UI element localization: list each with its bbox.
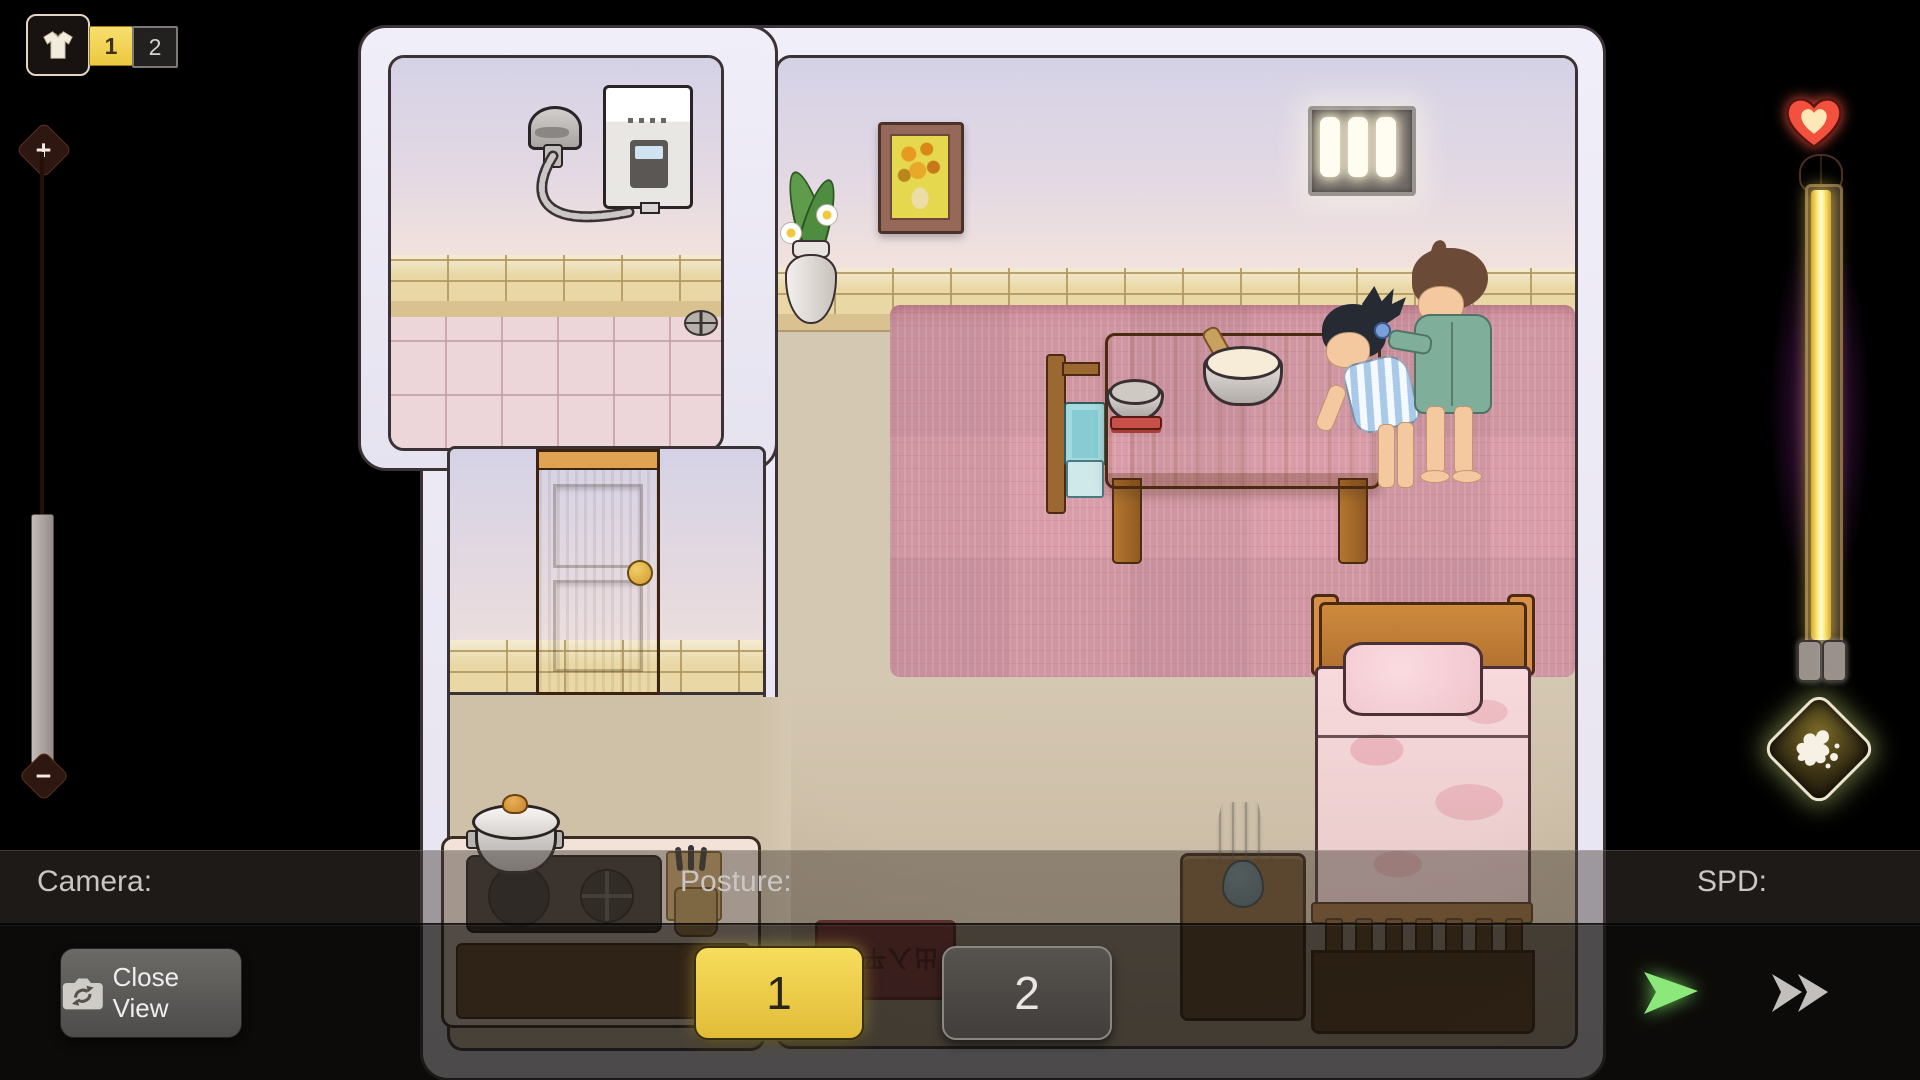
close-view-button[interactable]: Close View [60, 948, 242, 1038]
blanket-fold [1318, 735, 1528, 738]
posture-2-label: 2 [1014, 966, 1040, 1020]
heater-vents [628, 118, 668, 123]
chopsticks [1110, 416, 1162, 430]
arousal-gauge [1805, 184, 1843, 652]
chair-back [1046, 354, 1066, 514]
sunflower-painting [878, 122, 964, 234]
chair-cushion [1064, 402, 1106, 466]
heater-panel [630, 140, 668, 188]
window-pane [1348, 117, 1368, 177]
boy-cardigan [1414, 314, 1492, 414]
vase-body [785, 254, 837, 324]
close-view-label: Close View [113, 962, 241, 1024]
bathroom [388, 55, 724, 451]
window-pane [1376, 117, 1396, 177]
posture-1-label: 1 [766, 966, 792, 1020]
boy-character[interactable] [1402, 248, 1502, 498]
door-lintel [539, 452, 657, 470]
chair[interactable] [1046, 354, 1106, 514]
flower-vase [778, 170, 842, 326]
heater-outlet [640, 202, 660, 214]
daisy-flower [816, 204, 838, 226]
window [1308, 106, 1416, 196]
boy-leg [1426, 406, 1445, 474]
zoom-in-button[interactable]: + [16, 122, 73, 179]
outfit-1-label: 1 [105, 33, 118, 60]
painting-canvas [890, 134, 950, 220]
minus-icon: − [36, 763, 52, 790]
heart-icon [1782, 92, 1846, 150]
posture-1-button[interactable]: 1 [694, 946, 864, 1040]
game-screen: 出入平安 [0, 0, 1920, 1080]
chair-towel [1066, 460, 1104, 498]
fast-forward-icon[interactable] [1768, 966, 1854, 1020]
brick-trim [391, 255, 721, 301]
floor-drain [684, 310, 718, 336]
splash-diamond-icon[interactable] [1770, 700, 1862, 792]
shower-face [535, 127, 569, 138]
zoom-out-button[interactable]: − [19, 751, 70, 802]
table-leg [1112, 478, 1142, 564]
boy-foot [1420, 470, 1450, 483]
water-heater[interactable] [603, 85, 693, 209]
girl-leg [1378, 424, 1395, 488]
window-pane [1320, 117, 1340, 177]
boy-foot [1452, 470, 1482, 483]
shirt-icon [40, 29, 76, 61]
outfit-1-button[interactable]: 1 [89, 26, 133, 66]
heater-display [635, 146, 663, 159]
bowl-rim [1109, 379, 1161, 405]
door-panel [553, 484, 643, 568]
play-arrow-icon[interactable] [1640, 966, 1702, 1020]
bathroom-tiles [391, 317, 721, 448]
gauge-bottom-cap [1797, 640, 1847, 682]
pillow [1343, 642, 1483, 716]
outfit-2-button[interactable]: 2 [132, 26, 178, 68]
chair-rail [1062, 362, 1100, 376]
arousal-gauge-fill [1811, 190, 1831, 640]
porridge [1205, 346, 1281, 380]
posture-label: Posture: [680, 865, 792, 899]
boy-leg [1454, 406, 1473, 474]
wooden-door[interactable] [536, 449, 660, 695]
door-panel [553, 580, 643, 672]
spd-label: SPD: [1697, 865, 1767, 899]
splash-glyph [1786, 716, 1846, 776]
lid-knob [502, 794, 528, 814]
outfit-button[interactable] [26, 14, 90, 76]
bottom-bar-labels: Camera: Posture: SPD: [0, 850, 1920, 924]
porridge-bowl[interactable] [1203, 328, 1279, 404]
outfit-2-label: 2 [149, 34, 162, 61]
cardigan-placket [1451, 322, 1453, 406]
zoom-slider-thumb[interactable] [31, 514, 54, 764]
plus-icon: + [36, 137, 52, 164]
camera-label: Camera: [37, 865, 152, 899]
door-knob [627, 560, 653, 586]
posture-2-button[interactable]: 2 [942, 946, 1112, 1040]
bottom-bar-buttons: Close View 1 2 [0, 923, 1920, 1080]
camera-swap-icon [61, 974, 105, 1012]
small-bowl[interactable] [1106, 375, 1160, 417]
